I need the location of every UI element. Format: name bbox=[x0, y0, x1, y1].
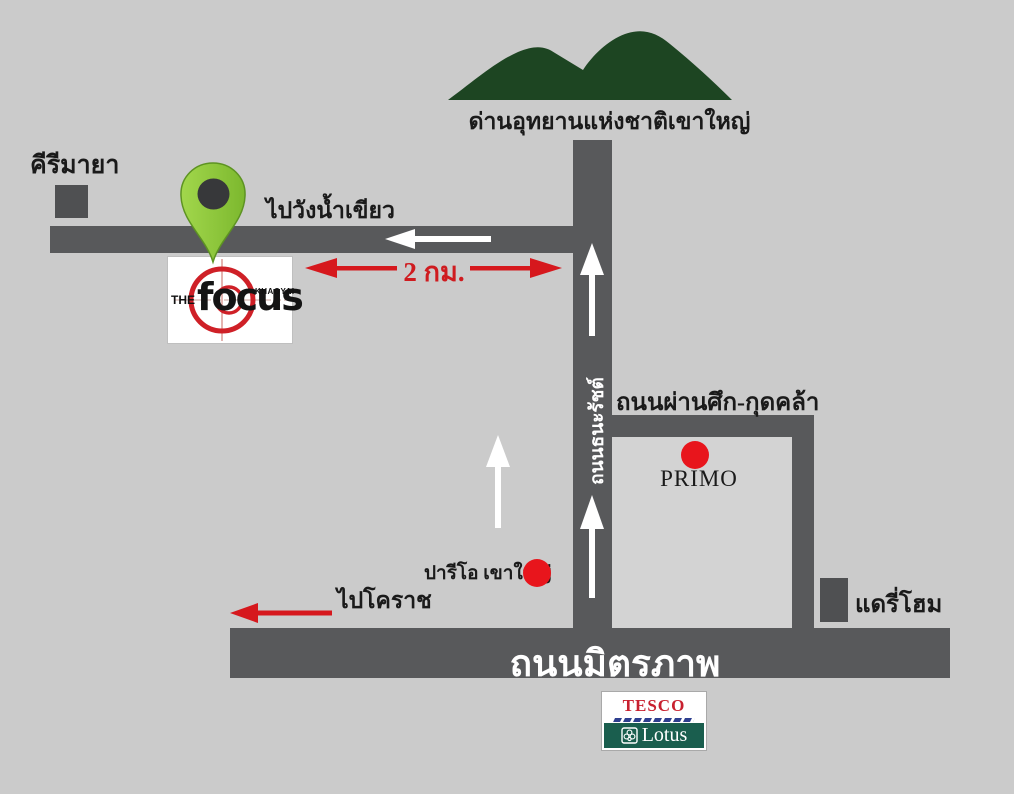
national-park-label: ด่านอุทยานแห่งชาติเขาใหญ่ bbox=[452, 104, 767, 140]
north-arrow-icon bbox=[485, 435, 511, 530]
wang-nam-khiao-direction-label: ไปวังน้ำเขียว bbox=[266, 193, 395, 229]
kirimaya-label: คีรีมายา bbox=[30, 145, 119, 185]
tesco-label: TESCO bbox=[623, 696, 686, 716]
lotus-flower-icon bbox=[621, 727, 638, 744]
focus-the-label: THE bbox=[171, 293, 195, 307]
focus-name-label: focus bbox=[197, 278, 302, 316]
distance-arrow-right-icon bbox=[470, 255, 562, 281]
palio-dot bbox=[523, 559, 551, 587]
mountain-icon bbox=[440, 22, 740, 104]
phan-suek-road-vertical bbox=[792, 415, 814, 628]
dairy-home-building bbox=[820, 578, 848, 622]
dairy-home-label: แดรี่โฮม bbox=[855, 584, 942, 623]
primo-label: PRIMO bbox=[653, 466, 745, 492]
phan-suek-road-label: ถนนผ่านศึก-กุดคล้า bbox=[616, 382, 819, 421]
location-pin-icon bbox=[178, 160, 248, 265]
mittraphap-road-label: ถนนมิตรภาพ bbox=[460, 634, 770, 693]
primo-dot bbox=[681, 441, 709, 469]
distance-arrow-left-icon bbox=[305, 255, 397, 281]
korat-arrow-icon bbox=[230, 602, 332, 624]
map-canvas: ด่านอุทยานแห่งชาติเขาใหญ่ ถนนธนะรัชต์ ถน… bbox=[0, 0, 1014, 794]
wang-nam-khiao-road bbox=[50, 226, 612, 253]
thanarat-road-label: ถนนธนะรัชต์ bbox=[582, 355, 604, 507]
west-arrow-icon bbox=[385, 228, 493, 250]
kirimaya-building bbox=[55, 185, 88, 218]
focus-logo: THE focus KHAOYAI bbox=[168, 257, 292, 343]
focus-khaoyai-label: KHAOYAI bbox=[255, 287, 295, 296]
north-arrow-icon bbox=[579, 243, 605, 338]
distance-label: 2 กม. bbox=[396, 250, 472, 293]
tesco-lotus-logo: TESCO Lotus bbox=[602, 692, 706, 750]
tesco-dashes-icon bbox=[613, 718, 695, 722]
north-arrow-icon bbox=[579, 495, 605, 600]
korat-direction-label: ไปโคราช bbox=[337, 583, 432, 619]
lotus-label: Lotus bbox=[642, 724, 688, 747]
